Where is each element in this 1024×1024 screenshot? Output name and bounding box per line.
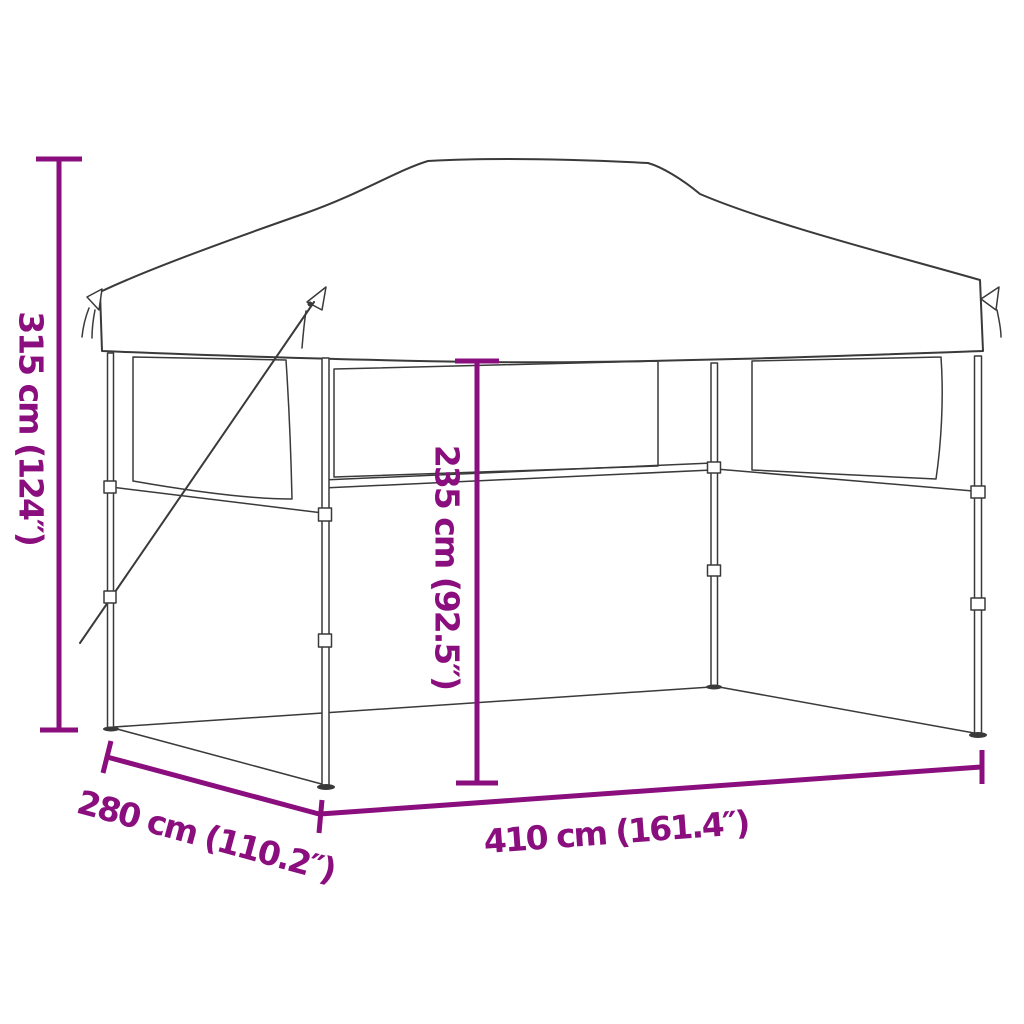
pole-front-left — [317, 358, 335, 790]
product-dimension-diagram: 315 cm (124″) 235 cm (92.5″) 410 cm (161… — [0, 0, 1024, 1024]
sidewalls — [111, 357, 974, 786]
back-wall-bottom-edge — [114, 687, 711, 727]
back-wall-window — [334, 361, 658, 477]
pole-back-left — [103, 353, 119, 732]
dimension-label-side-height: 235 cm (92.5″) — [428, 445, 467, 689]
pole-front-right — [969, 356, 987, 738]
dimension-label-total-height: 315 cm (124″) — [12, 311, 51, 545]
canopy — [100, 159, 983, 362]
right-wall-seam — [716, 469, 973, 491]
poles — [103, 353, 987, 790]
left-wall-bottom-edge — [117, 729, 329, 786]
tent-line-drawing — [0, 0, 1024, 1024]
pole-back-right — [706, 363, 722, 690]
right-corner-tie — [981, 287, 999, 310]
right-wall-window — [752, 357, 942, 479]
left-wall-window — [133, 357, 292, 499]
right-wall-bottom-edge — [719, 687, 974, 733]
left-corner-tie — [87, 289, 102, 310]
